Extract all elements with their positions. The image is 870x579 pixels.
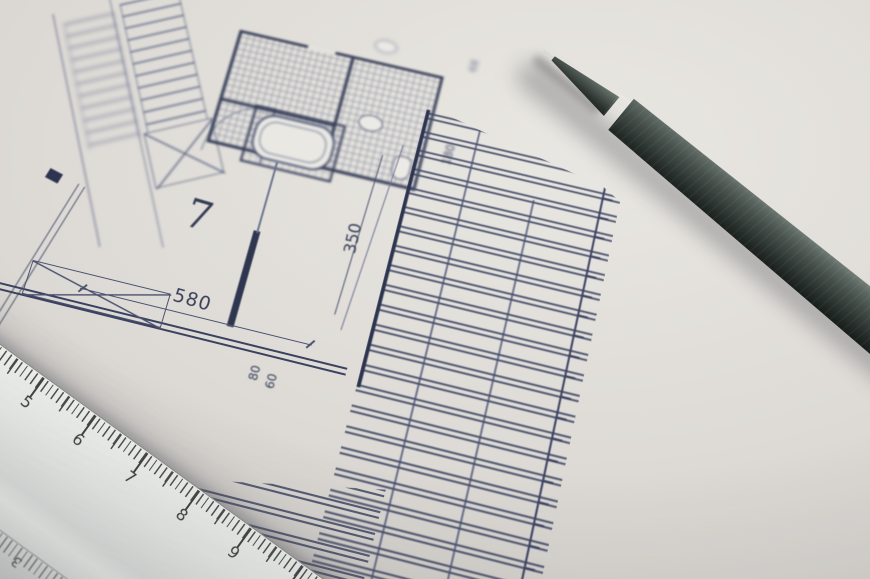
dimension-label-60: 60	[262, 372, 280, 390]
dimension-label-350: 350	[340, 221, 366, 255]
dimension-label-80: 80	[246, 364, 264, 382]
bed-outline	[22, 260, 171, 328]
bathroom-door-gap	[307, 45, 336, 56]
dimension-label-68: 68	[466, 59, 481, 74]
corner-sink-symbol	[373, 38, 398, 56]
photo-scene: 7 580 350 80 60 180 68 4 5 6 7 8	[0, 0, 870, 579]
dimension-tick	[306, 340, 316, 348]
door-jamb-wall	[227, 230, 261, 327]
bed-cross-lines	[22, 261, 171, 329]
wall-section-marker	[45, 168, 63, 183]
